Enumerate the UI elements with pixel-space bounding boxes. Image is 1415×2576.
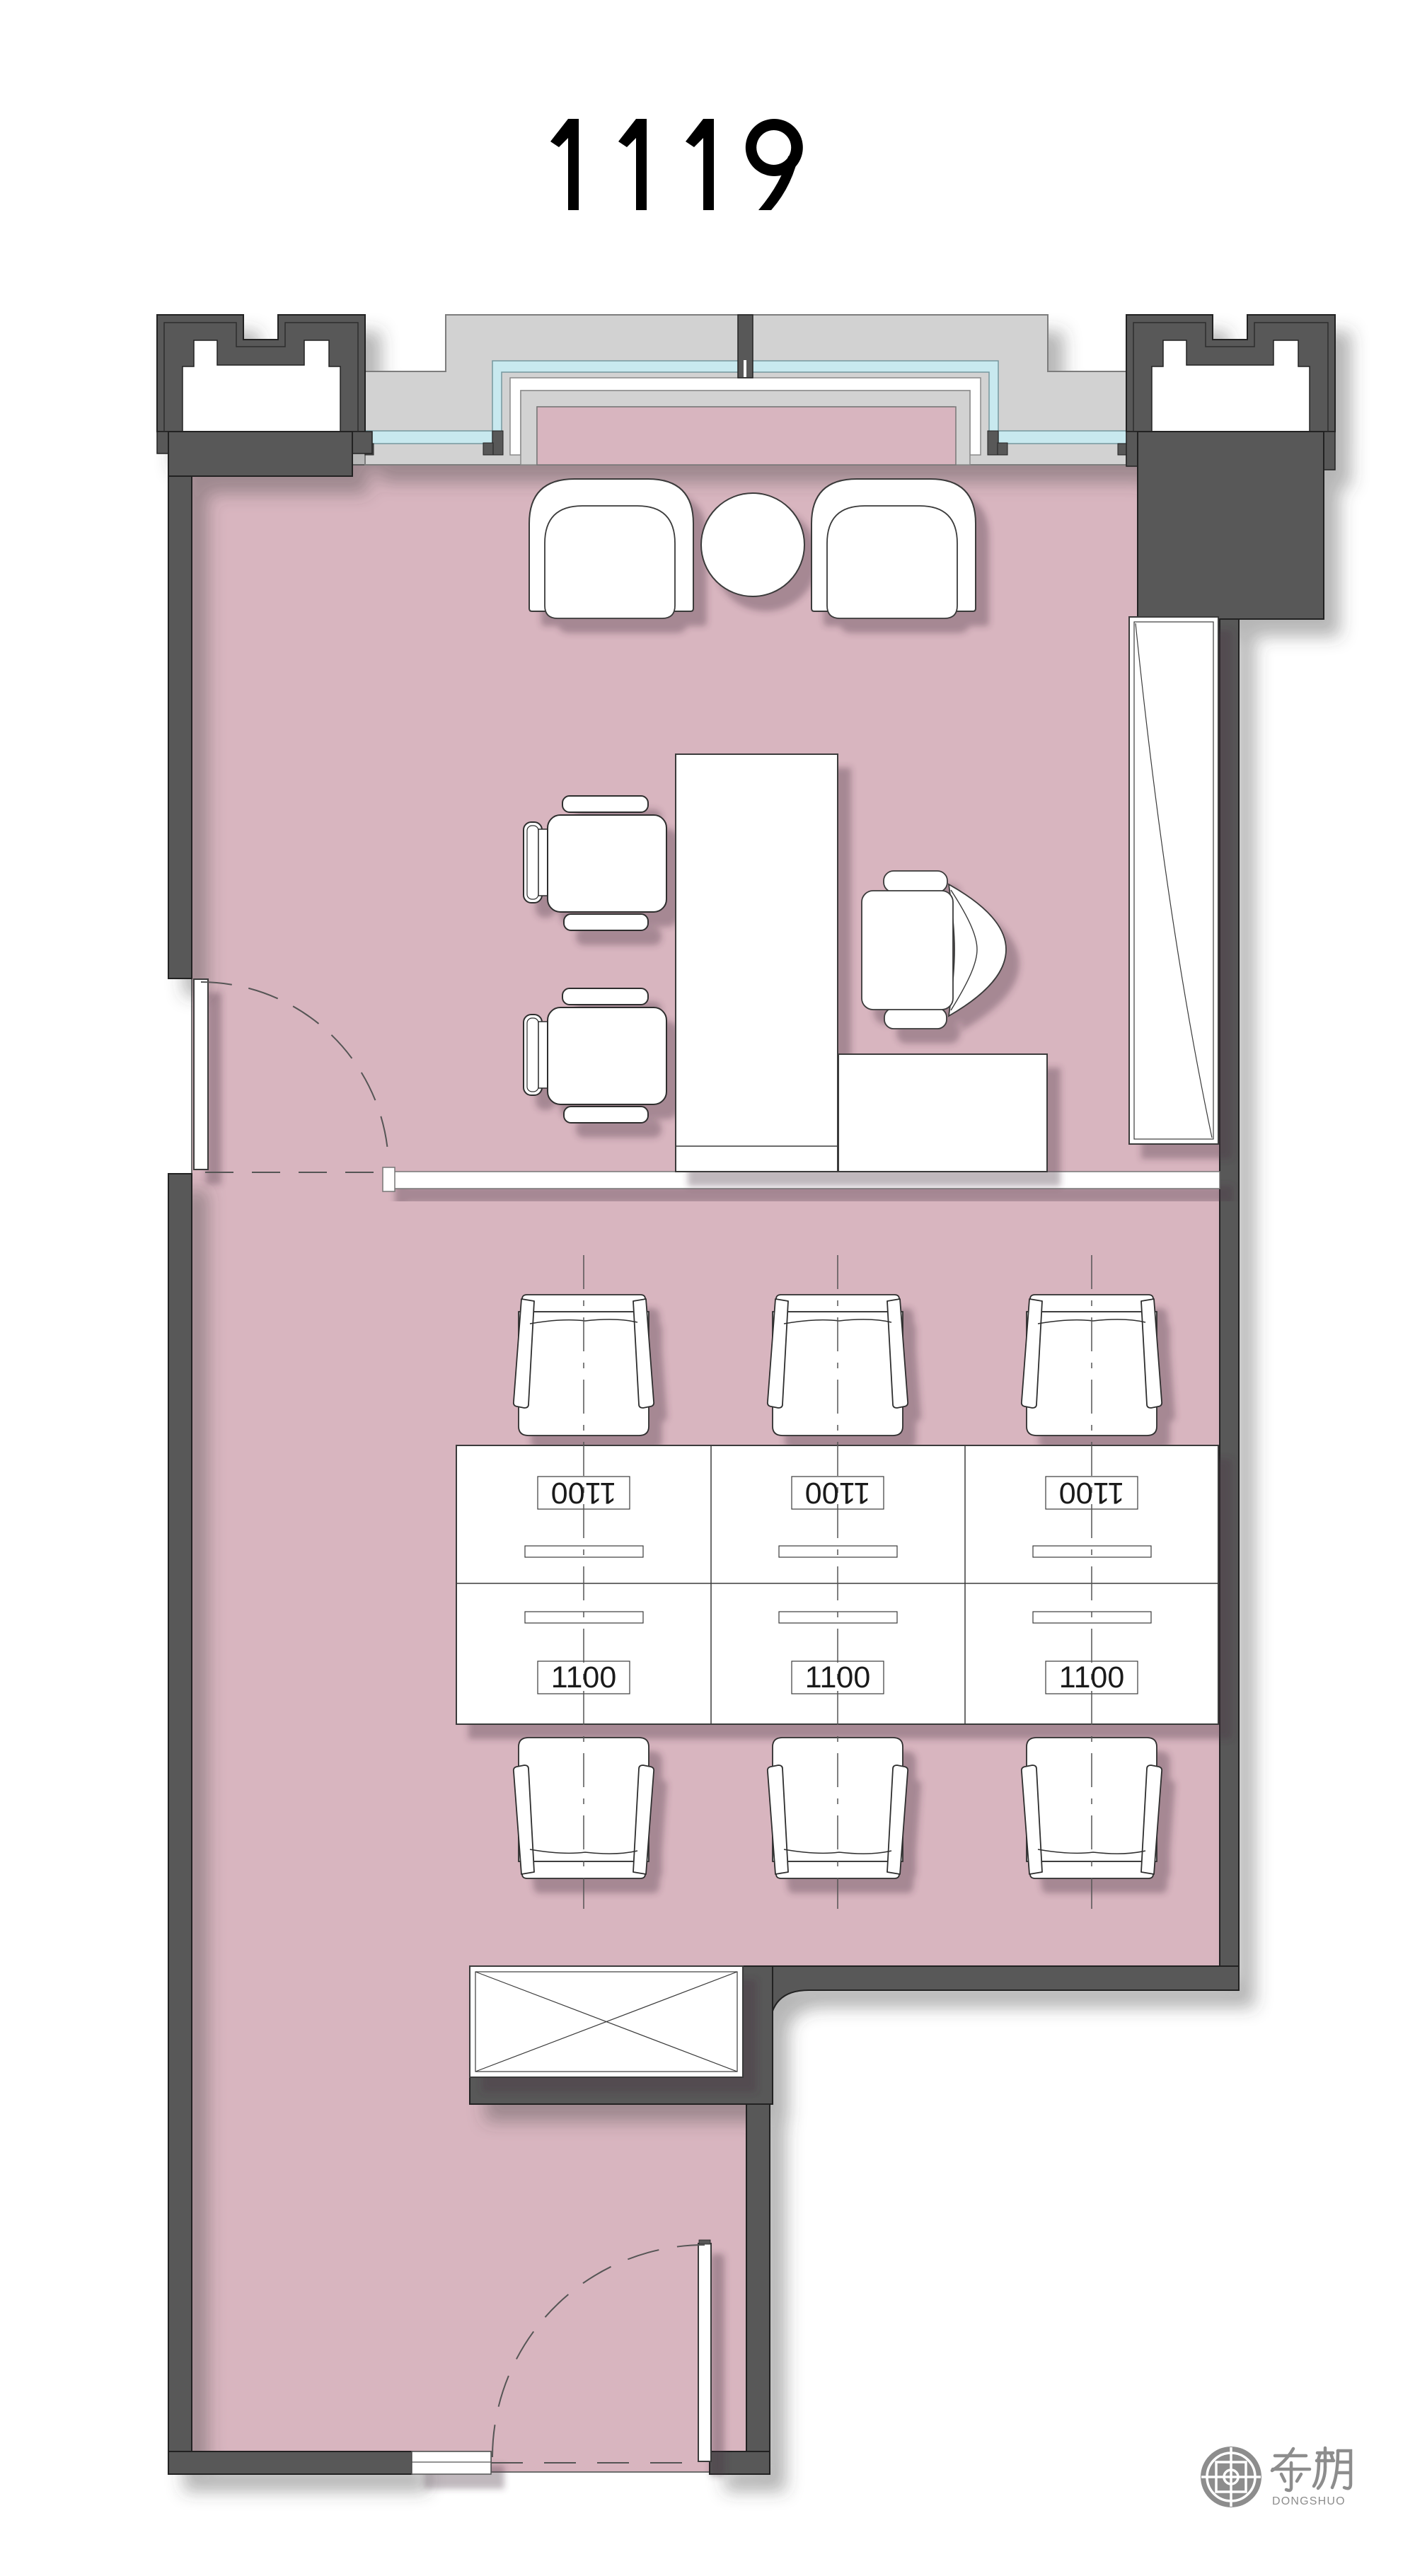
svg-text:1100: 1100 [805,1660,870,1694]
svg-text:1100: 1100 [1059,1660,1124,1694]
svg-text:DONGSHUO: DONGSHUO [1272,2495,1346,2507]
svg-text:1100: 1100 [551,1476,616,1510]
svg-text:1100: 1100 [805,1476,870,1510]
svg-text:1100: 1100 [1059,1476,1124,1510]
svg-text:1100: 1100 [551,1660,616,1694]
